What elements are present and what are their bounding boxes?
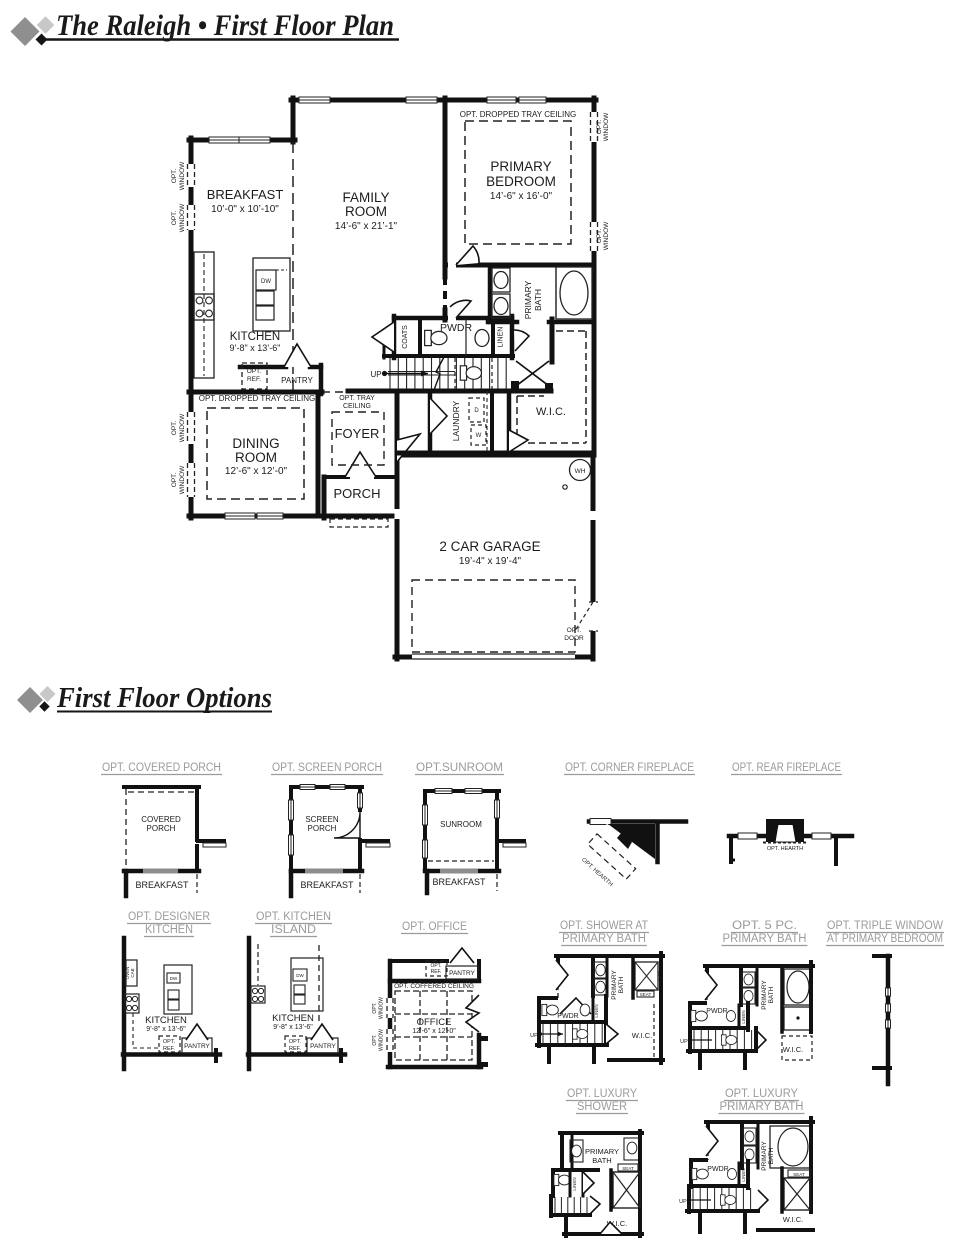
- svg-text:DOOR: DOOR: [564, 635, 584, 642]
- svg-text:OPT. DROPPED TRAY CEILING: OPT. DROPPED TRAY CEILING: [460, 110, 576, 119]
- svg-text:ROOM: ROOM: [235, 450, 277, 465]
- svg-text:DW: DW: [170, 976, 178, 981]
- svg-text:BATH: BATH: [768, 986, 775, 1003]
- svg-text:PWDR: PWDR: [440, 322, 472, 334]
- svg-text:CEILING: CEILING: [343, 403, 371, 410]
- svg-text:SUNROOM: SUNROOM: [440, 820, 482, 829]
- svg-text:OPT.: OPT.: [567, 627, 582, 634]
- svg-text:OPT.: OPT.: [171, 169, 178, 184]
- svg-text:14’-6" x 16’-0": 14’-6" x 16’-0": [490, 191, 553, 202]
- svg-text:OPT. SHOWER AT: OPT. SHOWER AT: [560, 920, 648, 932]
- svg-text:ISLAND: ISLAND: [271, 924, 316, 936]
- svg-text:OPT.: OPT.: [372, 1034, 378, 1045]
- svg-text:BREAKFAST: BREAKFAST: [300, 880, 354, 890]
- svg-text:WINDOW: WINDOW: [379, 997, 385, 1019]
- svg-text:OPT. DROPPED TRAY CEILING: OPT. DROPPED TRAY CEILING: [199, 394, 315, 403]
- svg-text:REF.: REF.: [247, 376, 261, 383]
- svg-text:OPT.: OPT.: [163, 1039, 176, 1045]
- svg-text:PWDR: PWDR: [707, 1166, 728, 1173]
- svg-text:LINEN: LINEN: [572, 1177, 577, 1190]
- svg-text:BATH: BATH: [618, 976, 625, 993]
- svg-text:OPT.SUNROOM: OPT.SUNROOM: [416, 762, 503, 774]
- svg-text:KITCHEN: KITCHEN: [272, 1013, 314, 1024]
- svg-text:OPT. COFFERED CEILING: OPT. COFFERED CEILING: [394, 983, 474, 990]
- svg-text:W.I.C.: W.I.C.: [783, 1215, 803, 1224]
- svg-text:SEAT: SEAT: [640, 992, 652, 997]
- svg-text:DW: DW: [296, 973, 304, 978]
- svg-text:OPT.: OPT.: [171, 421, 178, 436]
- svg-text:PANTRY: PANTRY: [449, 970, 475, 977]
- svg-text:OPT. REAR FIREPLACE: OPT. REAR FIREPLACE: [732, 762, 841, 774]
- svg-text:W: W: [476, 433, 482, 439]
- svg-text:WINDOW: WINDOW: [179, 465, 186, 494]
- svg-text:WINDOW: WINDOW: [179, 203, 186, 232]
- svg-text:SEAT: SEAT: [793, 1172, 805, 1177]
- svg-text:WINDOW: WINDOW: [179, 413, 186, 442]
- svg-text:BATH: BATH: [533, 289, 543, 311]
- svg-text:BATH: BATH: [592, 1156, 611, 1165]
- svg-text:COVERED: COVERED: [141, 815, 181, 824]
- svg-text:LAUNDRY: LAUNDRY: [451, 400, 461, 441]
- svg-text:OPT. LUXURY: OPT. LUXURY: [725, 1088, 798, 1100]
- svg-text:12’-6" x 12’-0": 12’-6" x 12’-0": [412, 1028, 456, 1035]
- svg-text:UP: UP: [530, 1033, 538, 1039]
- svg-text:OPT.: OPT.: [289, 1039, 302, 1045]
- svg-text:COATS: COATS: [402, 325, 409, 349]
- svg-text:PRIMARY: PRIMARY: [761, 1141, 768, 1171]
- svg-text:SCREEN: SCREEN: [305, 815, 339, 824]
- svg-text:PRIMARY BATH: PRIMARY BATH: [723, 933, 807, 945]
- svg-text:LINEN: LINEN: [594, 1004, 599, 1017]
- svg-text:WINDOW: WINDOW: [603, 221, 610, 250]
- svg-text:The Raleigh • First Floor Plan: The Raleigh • First Floor Plan: [56, 10, 394, 42]
- svg-text:AT PRIMARY BEDROOM: AT PRIMARY BEDROOM: [827, 933, 943, 945]
- svg-text:W.I.C.: W.I.C.: [536, 406, 566, 418]
- svg-text:WH: WH: [575, 468, 586, 475]
- svg-text:DINING: DINING: [232, 436, 279, 451]
- svg-text:CAB: CAB: [130, 968, 135, 977]
- svg-text:OPT.: OPT.: [171, 211, 178, 226]
- svg-text:DW: DW: [261, 279, 271, 285]
- svg-text:OPT. COVERED PORCH: OPT. COVERED PORCH: [102, 762, 221, 774]
- svg-text:KITCHEN: KITCHEN: [230, 331, 280, 343]
- svg-text:PORCH: PORCH: [147, 824, 176, 833]
- svg-text:UP: UP: [680, 1039, 688, 1045]
- svg-text:19’-4" x 19’-4": 19’-4" x 19’-4": [459, 556, 522, 567]
- svg-text:BEDROOM: BEDROOM: [486, 174, 556, 189]
- svg-text:OFFICE: OFFICE: [417, 1017, 452, 1028]
- svg-text:REF.: REF.: [431, 969, 442, 975]
- svg-text:PRIMARY: PRIMARY: [611, 970, 618, 1000]
- svg-text:WINDOW: WINDOW: [179, 161, 186, 190]
- svg-text:10’-0" x 10’-10": 10’-0" x 10’-10": [211, 204, 279, 215]
- svg-text:PRIMARY: PRIMARY: [761, 980, 768, 1010]
- svg-text:W.I.C.: W.I.C.: [783, 1045, 803, 1054]
- svg-text:W.I.C.: W.I.C.: [632, 1031, 652, 1040]
- svg-text:PANTRY: PANTRY: [310, 1043, 336, 1050]
- svg-text:PRIMARY BATH: PRIMARY BATH: [720, 1101, 804, 1113]
- svg-text:BATH: BATH: [768, 1147, 775, 1164]
- svg-text:REF.: REF.: [289, 1046, 301, 1052]
- svg-text:UP: UP: [679, 1199, 687, 1205]
- svg-text:FAMILY: FAMILY: [342, 190, 389, 205]
- svg-text:OPT. HEARTH: OPT. HEARTH: [767, 846, 803, 852]
- svg-text:KITCHEN: KITCHEN: [145, 1015, 187, 1026]
- svg-text:LINEN: LINEN: [741, 1010, 746, 1023]
- svg-text:9’-8" x 13’-6": 9’-8" x 13’-6": [273, 1024, 313, 1031]
- svg-text:REF.: REF.: [163, 1046, 175, 1052]
- svg-text:BREAKFAST: BREAKFAST: [135, 880, 189, 890]
- svg-text:PRIMARY: PRIMARY: [523, 280, 533, 319]
- svg-text:BREAKFAST: BREAKFAST: [207, 187, 284, 202]
- svg-text:12’-6" x 12’-0": 12’-6" x 12’-0": [225, 466, 288, 477]
- svg-text:OPT.: OPT.: [596, 120, 603, 135]
- svg-text:SEAT: SEAT: [622, 1166, 634, 1171]
- svg-text:PRIMARY BATH: PRIMARY BATH: [562, 933, 646, 945]
- svg-text:14’-6" x 21’-1": 14’-6" x 21’-1": [335, 221, 398, 232]
- svg-text:OPT.: OPT.: [596, 229, 603, 244]
- svg-text:OPT. OFFICE: OPT. OFFICE: [402, 921, 467, 933]
- svg-text:OPT. TRAY: OPT. TRAY: [339, 395, 375, 402]
- svg-text:PANTRY: PANTRY: [184, 1043, 210, 1050]
- svg-text:OPT. CORNER FIREPLACE: OPT. CORNER FIREPLACE: [565, 762, 694, 774]
- svg-text:OPT. SCREEN PORCH: OPT. SCREEN PORCH: [272, 762, 382, 774]
- svg-text:First Floor Options: First Floor Options: [56, 683, 272, 714]
- svg-text:PRIMARY: PRIMARY: [585, 1147, 619, 1156]
- svg-text:KITCHEN: KITCHEN: [145, 924, 193, 936]
- svg-text:OPT.: OPT.: [247, 368, 262, 375]
- svg-text:ROOM: ROOM: [345, 204, 387, 219]
- svg-text:OPT.: OPT.: [372, 1002, 378, 1013]
- svg-text:OPT. 5 PC.: OPT. 5 PC.: [732, 920, 797, 932]
- svg-text:WINDOW: WINDOW: [379, 1029, 385, 1051]
- svg-text:PORCH: PORCH: [308, 824, 337, 833]
- svg-text:LINEN: LINEN: [741, 1168, 746, 1181]
- svg-text:PORCH: PORCH: [334, 486, 381, 501]
- svg-text:OPT. LUXURY: OPT. LUXURY: [567, 1088, 637, 1100]
- svg-text:OPT. DESIGNER: OPT. DESIGNER: [128, 911, 210, 923]
- svg-text:PWDR: PWDR: [706, 1008, 727, 1015]
- svg-text:BREAKFAST: BREAKFAST: [432, 877, 486, 887]
- svg-text:2 CAR GARAGE: 2 CAR GARAGE: [439, 539, 540, 554]
- svg-text:UP: UP: [370, 370, 381, 379]
- svg-text:OPT.: OPT.: [171, 473, 178, 488]
- svg-text:OPT. KITCHEN: OPT. KITCHEN: [256, 911, 331, 923]
- svg-text:9’-8" x 13’-6": 9’-8" x 13’-6": [230, 343, 281, 353]
- svg-text:D: D: [474, 408, 479, 414]
- svg-text:WINDOW: WINDOW: [603, 112, 610, 141]
- svg-text:FOYER: FOYER: [335, 426, 380, 441]
- svg-text:9’-8" x 13’-6": 9’-8" x 13’-6": [146, 1026, 186, 1033]
- svg-text:LINEN: LINEN: [498, 327, 505, 348]
- svg-text:PWDR: PWDR: [557, 1013, 578, 1020]
- svg-text:OPT. TRIPLE WINDOW: OPT. TRIPLE WINDOW: [827, 920, 943, 932]
- svg-text:PANTRY: PANTRY: [281, 376, 313, 385]
- svg-text:PRIMARY: PRIMARY: [490, 159, 551, 174]
- svg-text:SHOWER: SHOWER: [577, 1101, 627, 1113]
